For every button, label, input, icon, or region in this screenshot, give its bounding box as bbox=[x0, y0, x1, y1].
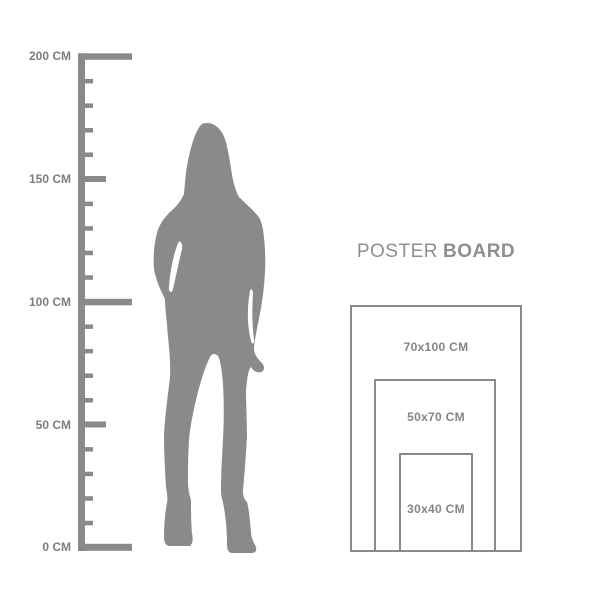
ruler-tick-110 bbox=[85, 275, 93, 280]
poster-rect-50x70 bbox=[375, 380, 495, 551]
size-label-50x70: 50x70 CM bbox=[407, 411, 465, 423]
ruler-tick-160 bbox=[85, 153, 93, 158]
ruler-tick-80 bbox=[85, 349, 93, 354]
ruler-tick-200 bbox=[78, 53, 132, 60]
ruler-tick-20 bbox=[85, 496, 93, 501]
ruler-label-0: 0 CM bbox=[42, 541, 71, 553]
ruler-label-50: 50 CM bbox=[36, 419, 71, 431]
woman-silhouette bbox=[154, 123, 266, 553]
ruler-tick-60 bbox=[85, 398, 93, 403]
ruler-tick-0 bbox=[78, 544, 132, 551]
ruler-tick-50 bbox=[78, 422, 106, 428]
size-chart-graphic bbox=[0, 0, 600, 600]
ruler-tick-90 bbox=[85, 324, 93, 329]
size-guide-canvas: 200 CM 150 CM 100 CM 50 CM 0 CM POSTERBO… bbox=[0, 0, 600, 600]
ruler-tick-130 bbox=[85, 226, 93, 231]
ruler-label-200: 200 CM bbox=[29, 50, 71, 62]
poster-title-bold: BOARD bbox=[443, 241, 515, 262]
ruler-label-150: 150 CM bbox=[29, 173, 71, 185]
size-label-70x100: 70x100 CM bbox=[404, 341, 469, 353]
poster-board-title: POSTERBOARD bbox=[357, 241, 515, 263]
ruler-tick-70 bbox=[85, 374, 93, 379]
ruler-tick-40 bbox=[85, 447, 93, 452]
woman-silhouette-body bbox=[154, 123, 266, 553]
ruler-tick-30 bbox=[85, 472, 93, 477]
ruler-tick-140 bbox=[85, 202, 93, 207]
ruler-tick-170 bbox=[85, 128, 93, 133]
ruler-tick-180 bbox=[85, 103, 93, 108]
ruler-tick-10 bbox=[85, 521, 93, 526]
ruler-tick-100 bbox=[78, 299, 132, 306]
height-ruler bbox=[78, 53, 132, 551]
ruler-label-100: 100 CM bbox=[29, 296, 71, 308]
ruler-tick-190 bbox=[85, 79, 93, 84]
ruler-tick-120 bbox=[85, 251, 93, 256]
ruler-tick-150 bbox=[78, 176, 106, 182]
poster-title-regular: POSTER bbox=[357, 241, 438, 262]
size-label-30x40: 30x40 CM bbox=[407, 503, 465, 515]
